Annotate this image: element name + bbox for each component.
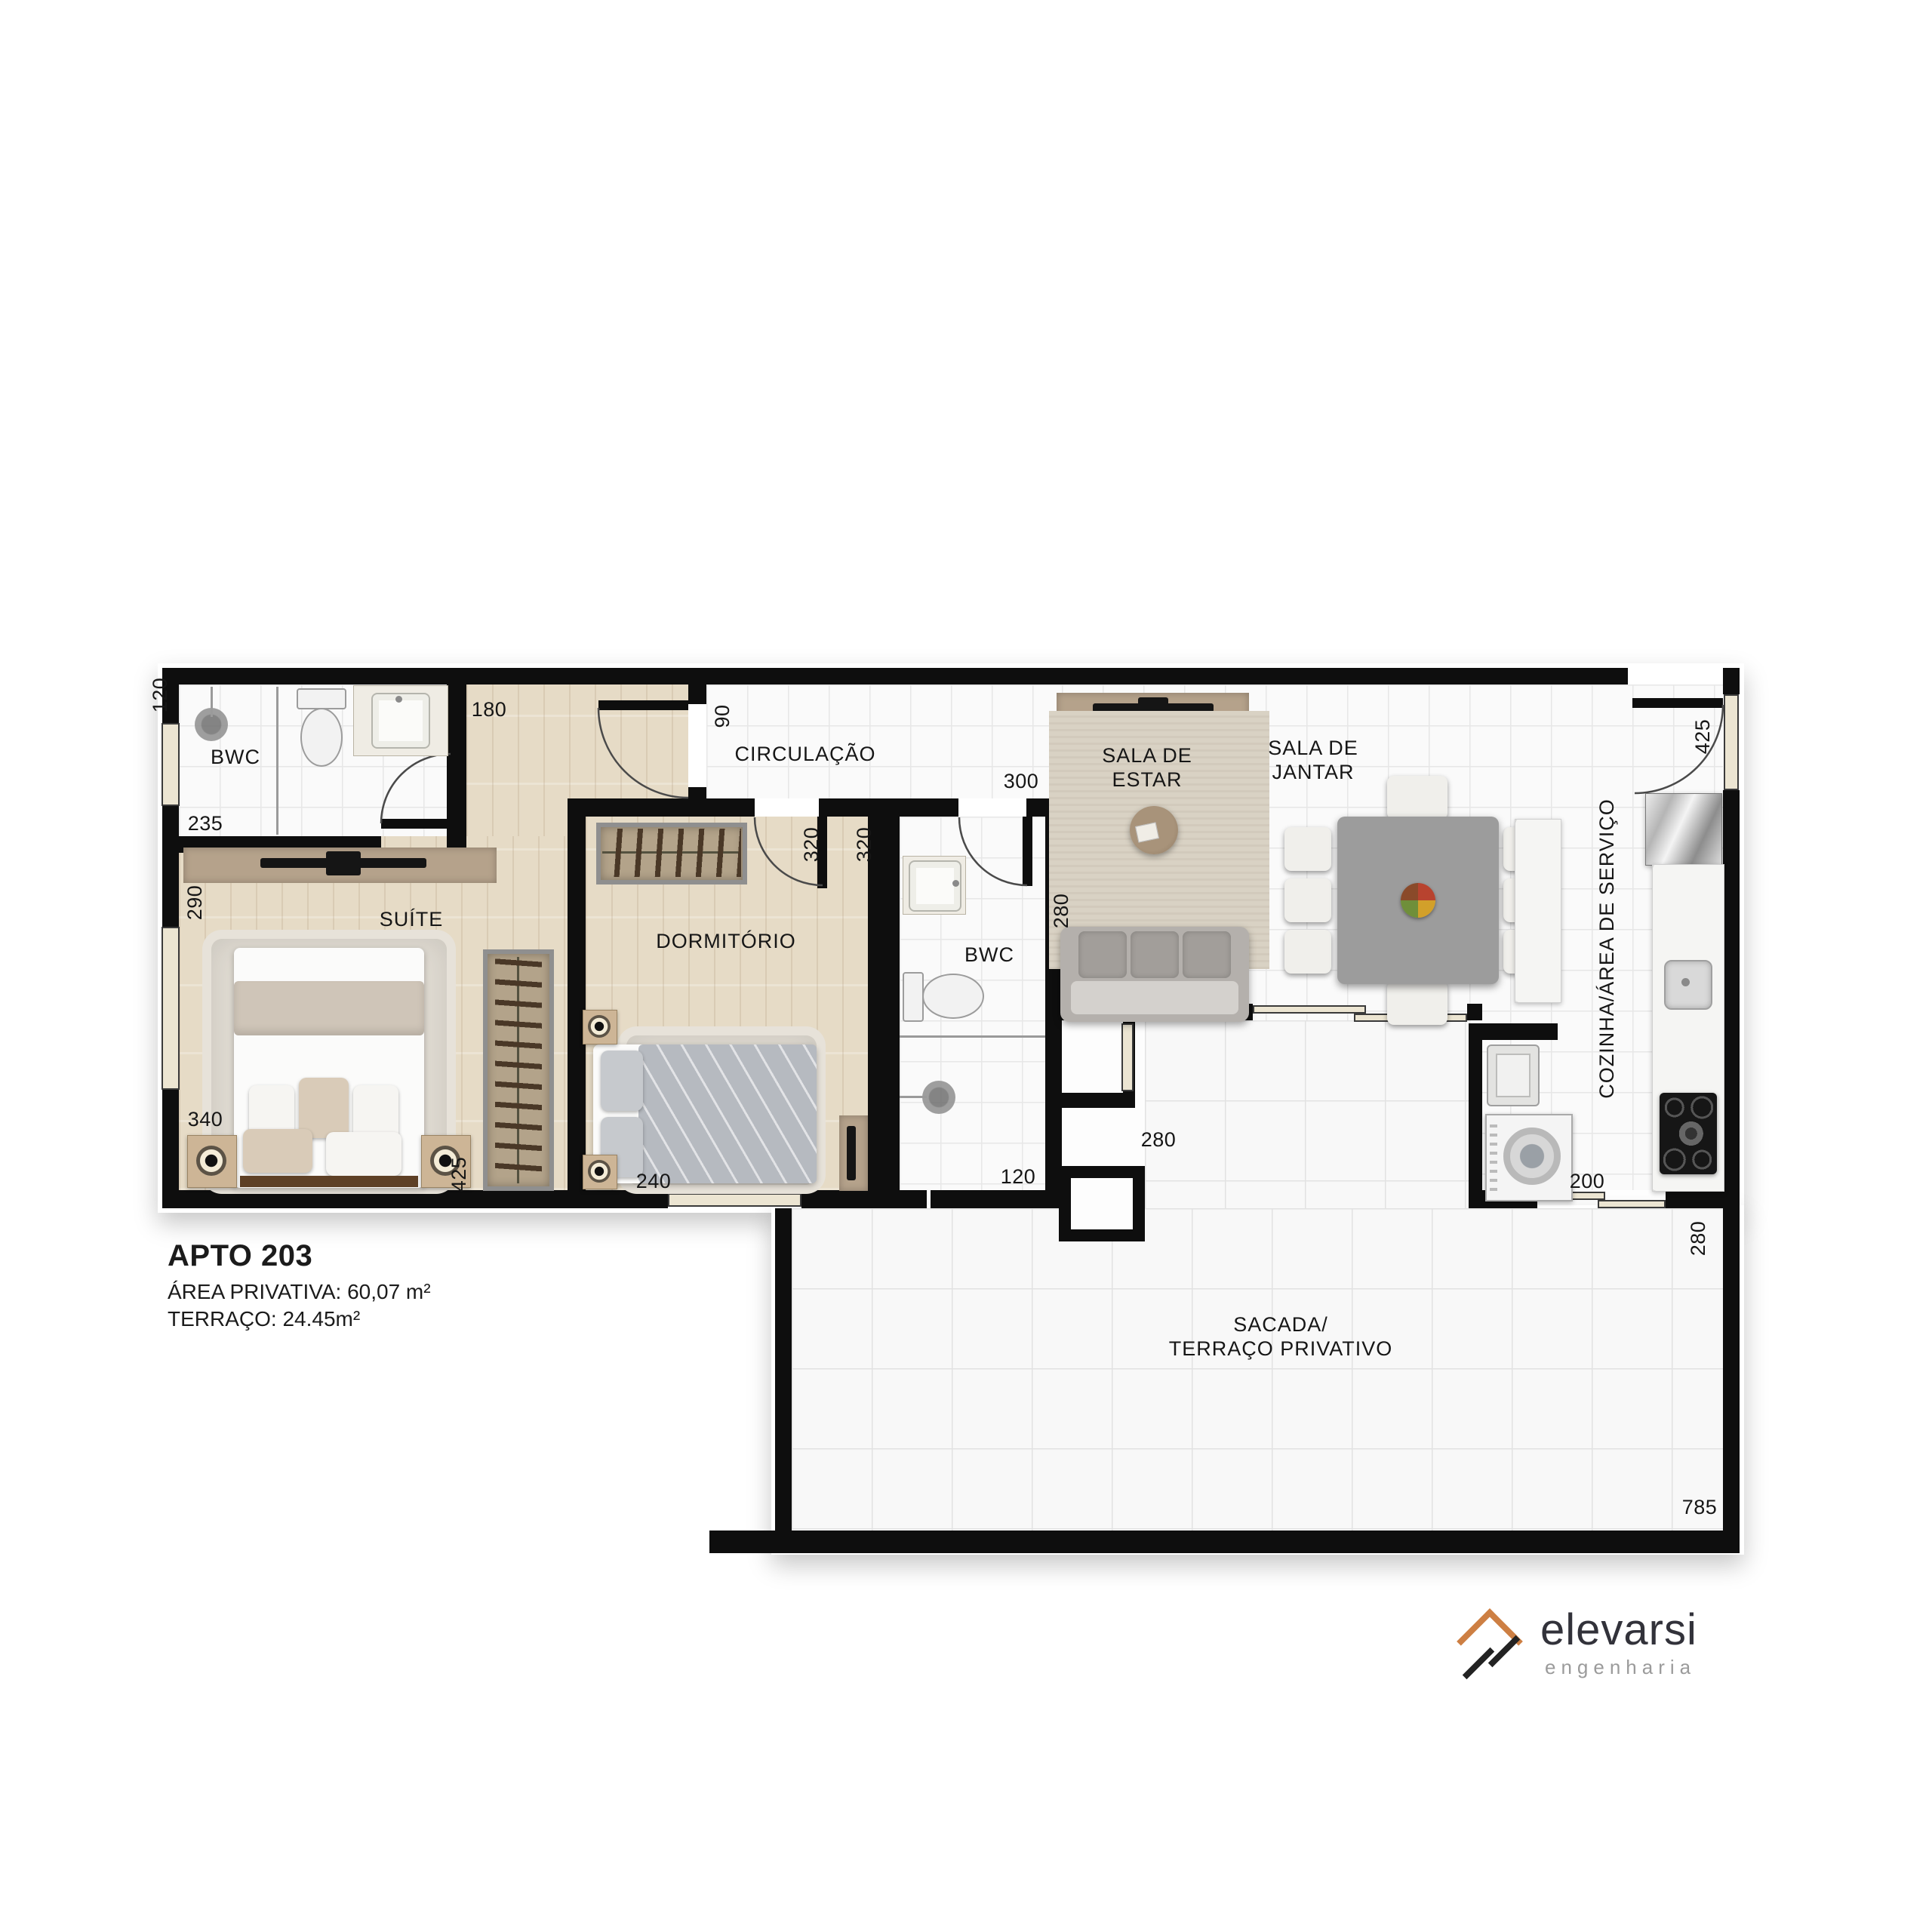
bwc2-shower-head-icon	[922, 1081, 955, 1114]
bwc2-shower-arm-icon	[900, 1096, 927, 1098]
room-label: CIRCULAÇÃO	[734, 743, 875, 767]
dimension-label: 120	[1001, 1165, 1036, 1189]
dimension-label: 290	[183, 885, 208, 921]
sofa-cushion-1	[1078, 931, 1127, 978]
dorm-bed-duvet	[638, 1044, 817, 1183]
terraco-text: TERRAÇO: 24.45m²	[168, 1307, 431, 1331]
room-label: DORMITÓRIO	[656, 930, 796, 954]
dimension-label: 425	[1691, 719, 1715, 755]
suite-bed-blanket	[234, 981, 424, 1035]
bwc2-toilet-bowl-icon	[922, 974, 984, 1019]
dimension-label: 235	[188, 812, 223, 836]
washing-machine-door-icon	[1503, 1128, 1561, 1185]
dimension-label: 785	[1682, 1496, 1718, 1520]
suite-speaker-left-icon	[196, 1146, 226, 1176]
dimension-label: 280	[1050, 894, 1074, 929]
suite-headboard	[240, 1176, 418, 1187]
dining-chair-l1	[1284, 827, 1331, 871]
elevarsi-logo: elevarsi engenharia	[1453, 1598, 1770, 1689]
dimension-label: 200	[1570, 1170, 1605, 1194]
suite-hangers-icon	[495, 957, 542, 1183]
suite-pillow-4	[243, 1129, 312, 1173]
kitchen-faucet-icon	[1681, 978, 1690, 986]
bwc2-toilet-tank-icon	[903, 972, 924, 1022]
dorm-pillow-1	[601, 1051, 643, 1111]
suite-tv-center-icon	[326, 851, 361, 875]
room-label: BWC	[211, 746, 260, 770]
dimension-label: 120	[149, 678, 173, 713]
apto-title: APTO 203	[168, 1239, 431, 1273]
stove-icon	[1660, 1093, 1717, 1174]
room-label: SALA DE JANTAR	[1268, 737, 1358, 785]
dimension-label: 320	[853, 827, 877, 863]
logo-subtitle: engenharia	[1545, 1656, 1696, 1679]
bwc2-faucet-icon	[952, 880, 959, 887]
dining-chair-l2	[1284, 878, 1331, 922]
dimension-label: 320	[800, 827, 824, 863]
room-label: SUÍTE	[380, 908, 444, 932]
room-label: BWC	[964, 943, 1014, 968]
room-label: COZINHA/ÁREA DE SERVIÇO	[1595, 798, 1620, 1099]
room-label: SACADA/ TERRAÇO PRIVATIVO	[1169, 1313, 1393, 1361]
fridge-icon	[1645, 793, 1722, 866]
suite-pillow-5	[326, 1132, 401, 1176]
dining-chair-top	[1387, 776, 1447, 820]
dorm-tv-icon	[847, 1126, 856, 1180]
dorm-speaker-top-icon	[588, 1015, 611, 1038]
dimension-label: 300	[1004, 770, 1039, 794]
shower-arm-icon	[211, 687, 213, 717]
bwc2-shower-glass-icon	[900, 1035, 1045, 1038]
toilet-tank-icon	[297, 688, 346, 709]
dining-chair-bottom	[1387, 981, 1447, 1025]
sofa	[1060, 927, 1249, 1022]
sofa-cushion-3	[1183, 931, 1231, 978]
dimension-label: 340	[188, 1108, 223, 1132]
dimension-label: 180	[472, 698, 507, 722]
dimension-label: 280	[1687, 1221, 1711, 1257]
vanity-faucet-icon	[395, 696, 402, 703]
dimension-label: 90	[711, 704, 735, 728]
fruit-bowl-icon	[1401, 883, 1435, 918]
room-label: SALA DE ESTAR	[1102, 744, 1192, 792]
sofa-seat	[1071, 981, 1238, 1014]
shower-glass-divider-icon	[276, 687, 278, 835]
dorm-speaker-bottom-icon	[588, 1160, 611, 1183]
dimension-label: 240	[636, 1170, 672, 1194]
toilet-bowl-icon	[300, 708, 343, 767]
kitchen-island	[1515, 819, 1561, 1003]
washing-machine-panel-icon	[1490, 1121, 1497, 1191]
floorplan-page: BWCSUÍTEDORMITÓRIOCIRCULAÇÃOSALA DE ESTA…	[0, 0, 1932, 1932]
title-block: APTO 203 ÁREA PRIVATIVA: 60,07 m² TERRAÇ…	[168, 1239, 431, 1331]
sofa-cushion-2	[1131, 931, 1179, 978]
logo-name: elevarsi	[1540, 1604, 1697, 1655]
dimension-label: 425	[448, 1157, 472, 1192]
area-privativa-text: ÁREA PRIVATIVA: 60,07 m²	[168, 1280, 431, 1304]
dimension-label: 280	[1141, 1128, 1177, 1152]
laundry-sink-icon	[1487, 1044, 1540, 1106]
dorm-hangers-icon	[602, 829, 741, 877]
dining-chair-l3	[1284, 930, 1331, 974]
